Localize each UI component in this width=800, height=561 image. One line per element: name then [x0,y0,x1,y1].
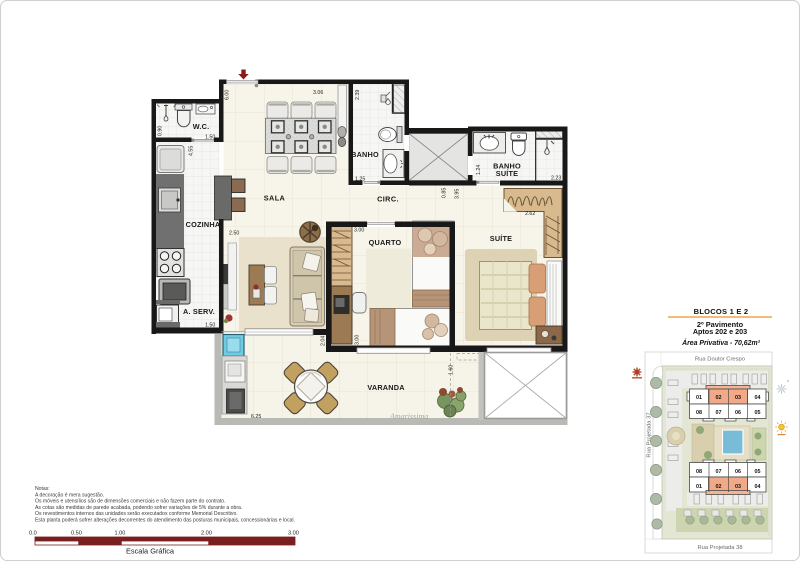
svg-text:Escala Gráfica: Escala Gráfica [126,547,175,556]
svg-text:02: 02 [716,395,722,401]
svg-text:2.00: 2.00 [201,531,212,537]
svg-text:1.50: 1.50 [205,135,215,141]
svg-text:0.85: 0.85 [442,188,448,198]
svg-text:0.0: 0.0 [29,531,37,537]
svg-text:As cotas são medidas de parede: As cotas são medidas de parede acabada, … [35,505,242,511]
svg-text:1.00: 1.00 [115,531,126,537]
svg-text:3.06: 3.06 [313,90,323,96]
svg-text:2.62: 2.62 [525,211,535,217]
svg-text:Os revestimentos internos das: Os revestimentos internos das unidades s… [35,511,238,517]
svg-text:08: 08 [696,469,702,475]
svg-text:COZINHA: COZINHA [186,220,221,229]
svg-text:6.00: 6.00 [225,90,231,100]
svg-text:SUÍTE: SUÍTE [496,169,519,178]
svg-text:06: 06 [735,410,741,416]
svg-text:2.04: 2.04 [321,336,327,346]
svg-text:2.23: 2.23 [551,176,561,182]
svg-text:BLOCOS 1 E 2: BLOCOS 1 E 2 [694,307,749,316]
svg-text:07: 07 [716,410,722,416]
svg-text:W.C.: W.C. [193,122,210,131]
svg-text:0.50: 0.50 [71,531,82,537]
svg-text:6.25: 6.25 [251,414,261,420]
svg-text:Os móveis e utensílios são de: Os móveis e utensílios são de dimensões … [35,499,226,505]
svg-text:Notas:: Notas: [35,486,50,492]
svg-text:05: 05 [755,410,761,416]
svg-text:08: 08 [696,410,702,416]
svg-text:1.24: 1.24 [476,165,482,175]
svg-text:QUARTO: QUARTO [369,238,402,247]
svg-text:01: 01 [696,484,702,490]
svg-text:Aptos 202 e 203: Aptos 202 e 203 [693,327,747,336]
svg-text:4.55: 4.55 [189,146,195,156]
svg-text:SUÍTE: SUÍTE [490,234,513,243]
svg-text:3.00: 3.00 [355,335,361,345]
svg-text:2.50: 2.50 [229,231,239,237]
svg-text:Área Privativa - 70,62m²: Área Privativa - 70,62m² [681,338,760,347]
svg-text:05: 05 [755,469,761,475]
svg-text:3.00: 3.00 [354,228,364,234]
svg-text:BANHO: BANHO [351,150,379,159]
svg-text:1.25: 1.25 [355,177,365,183]
svg-text:1.50: 1.50 [205,323,215,329]
svg-text:03: 03 [735,484,741,490]
svg-text:Rua Doutor Crespo: Rua Doutor Crespo [695,357,745,363]
svg-text:1.60: 1.60 [449,365,455,375]
svg-text:CIRC.: CIRC. [377,195,399,204]
svg-text:02: 02 [716,484,722,490]
svg-text:2.39: 2.39 [355,90,361,100]
svg-text:Rua Projetada 38: Rua Projetada 38 [697,545,742,551]
svg-text:04: 04 [755,395,761,401]
svg-text:3.95: 3.95 [455,189,461,199]
svg-text:Esta planta poderá sofrer alte: Esta planta poderá sofrer alterações dec… [35,518,295,524]
svg-text:06: 06 [735,469,741,475]
svg-text:SALA: SALA [264,194,286,203]
svg-text:01: 01 [696,395,702,401]
svg-text:Amarissima: Amarissima [389,412,428,421]
svg-text:04: 04 [755,484,761,490]
svg-text:0.90: 0.90 [158,126,164,136]
svg-text:03: 03 [735,395,741,401]
svg-text:07: 07 [716,469,722,475]
svg-text:3.00: 3.00 [288,531,299,537]
svg-text:A. SERV.: A. SERV. [183,307,215,316]
svg-text:Rua Projetada 37: Rua Projetada 37 [647,412,653,457]
svg-text:VARANDA: VARANDA [367,383,405,392]
svg-text:A decoração é mera sugestão.: A decoração é mera sugestão. [35,492,104,498]
